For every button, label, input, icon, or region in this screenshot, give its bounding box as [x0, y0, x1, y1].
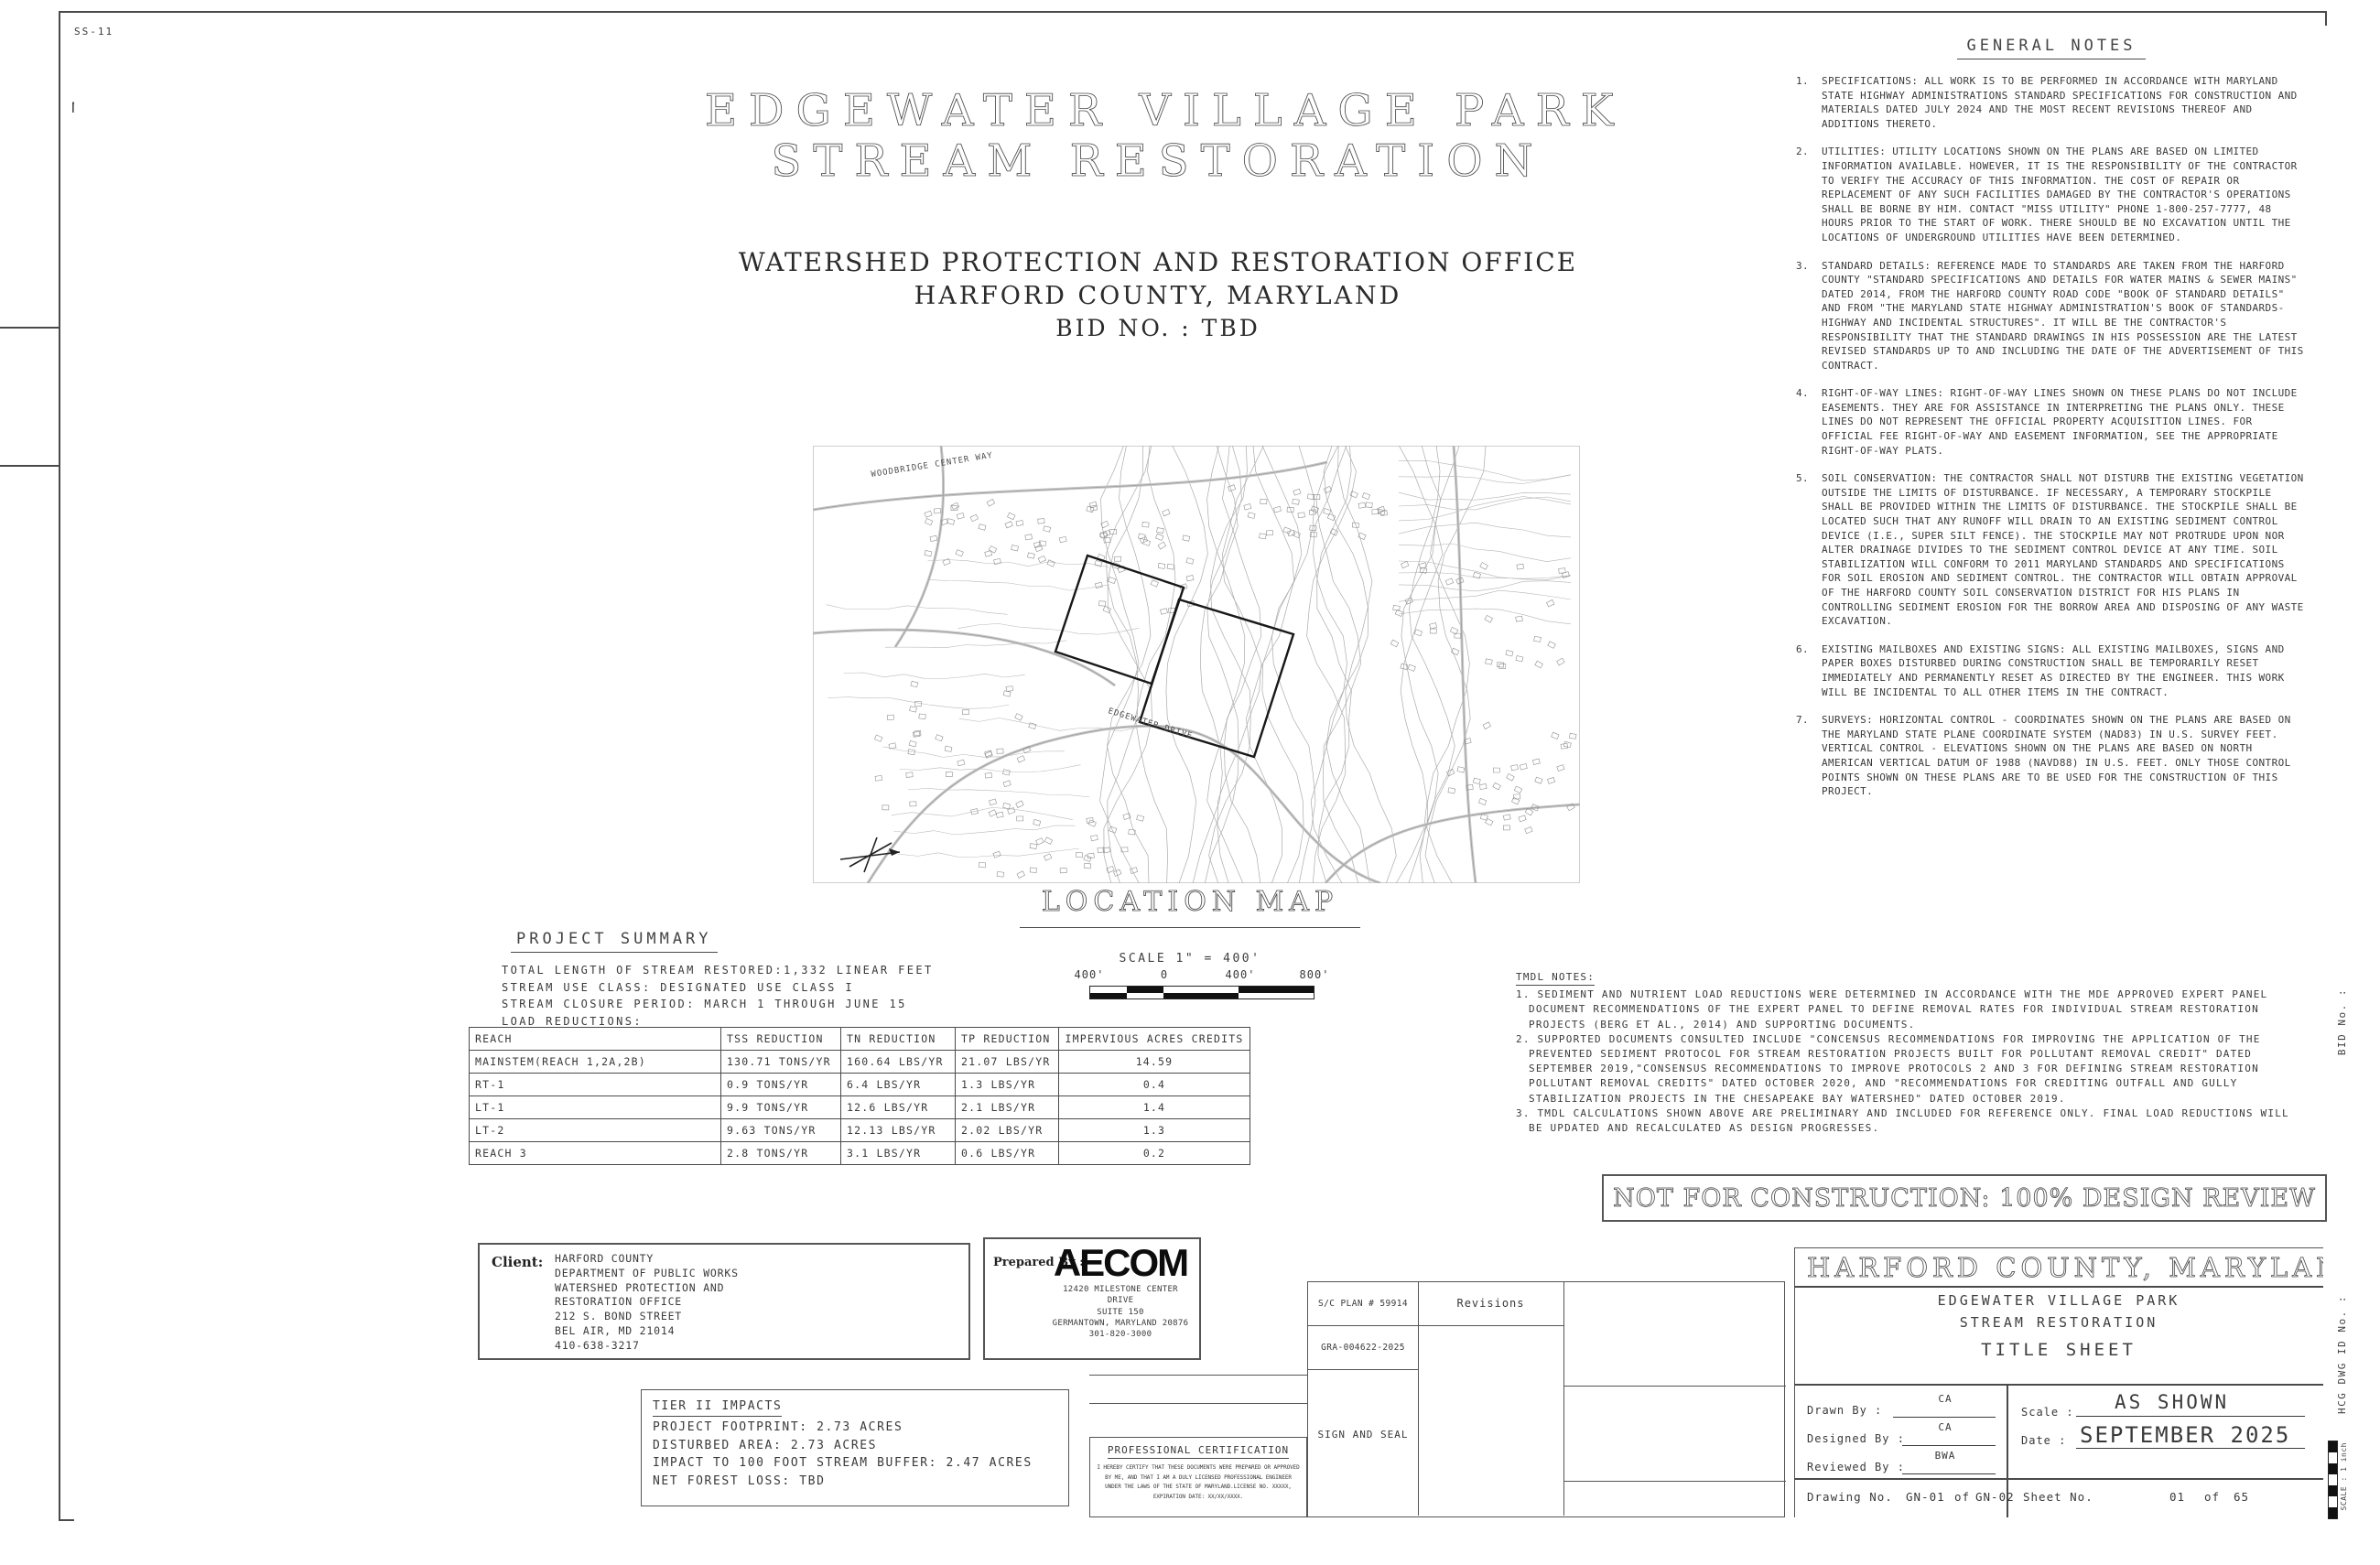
title-block-project-row: EDGEWATER VILLAGE PARK STREAM RESTORATIO… [1794, 1290, 2323, 1386]
sheet-no-label: Sheet No. [2023, 1490, 2093, 1504]
note-number: 4. [1796, 386, 1822, 458]
note-number: 6. [1796, 642, 1822, 699]
client-box: Client: HARFORD COUNTYDEPARTMENT OF PUBL… [478, 1243, 970, 1360]
scale-label: Scale : [2021, 1406, 2074, 1419]
table-row: LT-1 9.9 TONS/YR 12.6 LBS/YR 2.1 LBS/YR … [470, 1096, 1250, 1119]
tmdl-note: 2. SUPPORTED DOCUMENTS CONSULTED INCLUDE… [1516, 1032, 2309, 1106]
project-summary: PROJECT SUMMARY TOTAL LENGTH OF STREAM R… [502, 930, 1014, 1030]
sc-plan-number: S/C PLAN # 59914 [1308, 1299, 1418, 1309]
signature-line [1902, 1473, 1996, 1474]
project-name-line1: EDGEWATER VILLAGE PARK [1794, 1290, 2323, 1311]
reviewed-by-label: Reviewed By : [1807, 1461, 1905, 1473]
drawn-by-value: CA [1904, 1393, 1986, 1405]
tier2-line: DISTURBED AREA: 2.73 ACRES [653, 1437, 1068, 1455]
index-rows: 1 TITLE SHEET GN-01 2 GENERAL CONSTRUCTI… [71, 129, 465, 1415]
subtitle-office: WATERSHED PROTECTION AND RESTORATION OFF… [705, 247, 1611, 277]
location-map-image: WOODBRIDGE CENTER WAYEDGEWATER DRIVE [813, 446, 1580, 883]
revisions-label: Revisions [1418, 1297, 1563, 1310]
drawn-by-label: Drawn By : [1807, 1404, 1882, 1417]
aecom-logo: AECOM [1047, 1243, 1194, 1283]
scale-value: AS SHOWN [2115, 1391, 2229, 1413]
note-text: SOIL CONSERVATION: THE CONTRACTOR SHALL … [1822, 471, 2307, 629]
index-of-sheets: INDEX OF SHEETS NO. DESCRIPTION SHEETNAM… [71, 26, 465, 1415]
title-block-region-row: HARFORD COUNTY, MARYLAND [1794, 1247, 2323, 1288]
general-notes: GENERAL NOTES 1. SPECIFICATIONS: ALL WOR… [1796, 37, 2307, 813]
professional-certification-box: PROFESSIONAL CERTIFICATION I HEREBY CERT… [1089, 1437, 1307, 1517]
divider-line [1089, 1375, 1307, 1376]
reviewed-by-value: BWA [1904, 1450, 1986, 1462]
drawing-no2-value: GN-02 [1975, 1490, 2015, 1504]
table-row: LT-2 9.63 TONS/YR 12.13 LBS/YR 2.02 LBS/… [470, 1119, 1250, 1142]
load-reductions-table: REACH TSS REDUCTION TN REDUCTION TP REDU… [469, 1027, 1250, 1165]
drawing-sheet: INDEX OF SHEETS NO. DESCRIPTION SHEETNAM… [0, 0, 2380, 1539]
tier2-impacts-box: TIER II IMPACTS PROJECT FOOTPRINT: 2.73 … [641, 1389, 1069, 1506]
note-text: RIGHT-OF-WAY LINES: RIGHT-OF-WAY LINES S… [1822, 386, 2307, 458]
date-label: Date : [2021, 1434, 2066, 1447]
tmdl-note: 1. SEDIMENT AND NUTRIENT LOAD REDUCTIONS… [1516, 988, 2309, 1032]
subtitle-county: HARFORD COUNTY, MARYLAND [705, 282, 1611, 310]
note-text: EXISTING MAILBOXES AND EXISTING SIGNS: A… [1822, 642, 2307, 699]
sheet-title: TITLE SHEET [1794, 1335, 2323, 1365]
map-scale-ticks: 400' 0 400' 800' [1062, 968, 1340, 981]
note-number: 5. [1796, 471, 1822, 629]
tier2-line: PROJECT FOOTPRINT: 2.73 ACRES [653, 1419, 1068, 1437]
region-title: HARFORD COUNTY, MARYLAND [1807, 1252, 2323, 1283]
sheet-no-value: 01 [2169, 1490, 2185, 1504]
table-row: RT-1 0.9 TONS/YR 6.4 LBS/YR 1.3 LBS/YR 0… [470, 1074, 1250, 1096]
revisions-block: S/C PLAN # 59914 GRA-004622-2025 SIGN AN… [1307, 1281, 1785, 1517]
project-title-line1: EDGEWATER VILLAGE PARK [705, 86, 1611, 136]
general-note: 2. UTILITIES: UTILITY LOCATIONS SHOWN ON… [1796, 145, 2307, 244]
note-number: 3. [1796, 259, 1822, 373]
general-notes-title: GENERAL NOTES [1957, 37, 2145, 59]
signature-line [1893, 1417, 1996, 1418]
hcg-dwg-id-edge-label: HCG DWG ID No. : [2336, 1295, 2348, 1414]
drawing-no-label: Drawing No. [1807, 1490, 1893, 1504]
tmdl-notes-title: TMDL NOTES: [1516, 970, 1595, 986]
tmdl-note: 3. TMDL CALCULATIONS SHOWN ABOVE ARE PRE… [1516, 1106, 2309, 1136]
note-number: 7. [1796, 713, 1822, 799]
divider-line [2007, 1384, 2008, 1478]
note-text: STANDARD DETAILS: REFERENCE MADE TO STAN… [1822, 259, 2307, 373]
left-registration-tick [0, 327, 59, 329]
table-row: REACH 3 2.8 TONS/YR 3.1 LBS/YR 0.6 LBS/Y… [470, 1142, 1250, 1165]
tmdl-notes: TMDL NOTES: 1. SEDIMENT AND NUTRIENT LOA… [1516, 970, 2309, 1136]
project-title-line2: STREAM RESTORATION [705, 136, 1611, 187]
divider-line [1089, 1403, 1307, 1404]
title-block: HARFORD COUNTY, MARYLAND EDGEWATER VILLA… [1794, 1247, 2323, 1517]
divider-line [1563, 1386, 1786, 1387]
divider-line [1418, 1282, 1419, 1516]
note-text: SURVEYS: HORIZONTAL CONTROL - COORDINATE… [1822, 713, 2307, 799]
note-text: SPECIFICATIONS: ALL WORK IS TO BE PERFOR… [1822, 74, 2307, 131]
project-title: EDGEWATER VILLAGE PARK STREAM RESTORATIO… [705, 86, 1611, 187]
edge-scale-label: SCALE : 1 inch [2340, 1442, 2348, 1510]
general-note: 4. RIGHT-OF-WAY LINES: RIGHT-OF-WAY LINE… [1796, 386, 2307, 458]
general-note: 5. SOIL CONSERVATION: THE CONTRACTOR SHA… [1796, 471, 2307, 629]
client-address: HARFORD COUNTYDEPARTMENT OF PUBLIC WORKS… [555, 1252, 739, 1354]
table-row: MAINSTEM(REACH 1,2A,2B) 130.71 TONS/YR 1… [470, 1051, 1250, 1074]
general-note: 6. EXISTING MAILBOXES AND EXISTING SIGNS… [1796, 642, 2307, 699]
aecom-block: AECOM 12420 MILESTONE CENTER DRIVESUITE … [1047, 1243, 1194, 1340]
map-scale-text: SCALE 1" = 400' [1007, 952, 1373, 966]
general-note: 3. STANDARD DETAILS: REFERENCE MADE TO S… [1796, 259, 2307, 373]
project-name-line2: STREAM RESTORATION [1794, 1311, 2323, 1333]
aecom-address: 12420 MILESTONE CENTER DRIVESUITE 150GER… [1047, 1284, 1194, 1340]
note-number: 1. [1796, 74, 1822, 131]
drawing-no-value: GN-01 [1906, 1490, 1945, 1504]
divider-line [1308, 1325, 1563, 1326]
project-subtitle: WATERSHED PROTECTION AND RESTORATION OFF… [705, 247, 1611, 341]
general-note: 7. SURVEYS: HORIZONTAL CONTROL - COORDIN… [1796, 713, 2307, 799]
tier2-line: NET FOREST LOSS: TBD [653, 1473, 1068, 1491]
designed-by-value: CA [1904, 1421, 1986, 1433]
drawing-of: of [1954, 1490, 1970, 1504]
signature-line [1902, 1445, 1996, 1446]
title-block-credits-row: Drawn By : CA Designed By : CA Reviewed … [1794, 1384, 2323, 1480]
topographic-map: WOODBRIDGE CENTER WAYEDGEWATER DRIVE [813, 446, 1580, 883]
bid-no-edge-label: BID No. : [2336, 988, 2348, 1055]
not-for-construction-banner: NOT FOR CONSTRUCTION: 100% DESIGN REVIEW [1602, 1174, 2327, 1222]
designed-by-label: Designed By : [1807, 1432, 1905, 1445]
gra-number: GRA-004622-2025 [1308, 1343, 1418, 1353]
general-note: 1. SPECIFICATIONS: ALL WORK IS TO BE PER… [1796, 74, 2307, 131]
certification-title: PROFESSIONAL CERTIFICATION [1108, 1444, 1289, 1459]
project-summary-title: PROJECT SUMMARY [511, 930, 718, 953]
tier2-line: IMPACT TO 100 FOOT STREAM BUFFER: 2.47 A… [653, 1454, 1068, 1473]
index-row: 65 SEWER DETAILS SS-11 [71, 1395, 465, 1414]
client-label: Client: [492, 1254, 543, 1270]
subtitle-bid: BID NO. : TBD [705, 315, 1611, 341]
divider-line [1308, 1369, 1418, 1370]
title-block-number-row: Drawing No. GN-01 of GN-02 Sheet No. 01 … [1794, 1478, 2323, 1517]
left-registration-tick [0, 465, 59, 467]
divider-line [1563, 1481, 1786, 1482]
sign-and-seal-cell: SIGN AND SEAL [1308, 1429, 1418, 1441]
sheet-of: of [2204, 1490, 2220, 1504]
sheet-total-value: 65 [2234, 1490, 2249, 1504]
project-summary-lines: TOTAL LENGTH OF STREAM RESTORED:1,332 LI… [502, 962, 1014, 1030]
prepared-by-box: Prepared By : AECOM 12420 MILESTONE CENT… [983, 1237, 1201, 1360]
location-map-label: LOCATION MAP [934, 886, 1446, 928]
tier2-title: TIER II IMPACTS [653, 1398, 782, 1417]
underline [2076, 1448, 2305, 1449]
note-text: UTILITIES: UTILITY LOCATIONS SHOWN ON TH… [1822, 145, 2307, 244]
underline [2076, 1416, 2305, 1417]
map-scale-bar [1089, 986, 1314, 999]
certification-text: I HEREBY CERTIFY THAT THESE DOCUMENTS WE… [1096, 1463, 1301, 1502]
edge-scale-bar [2328, 1441, 2338, 1519]
note-number: 2. [1796, 145, 1822, 244]
date-value: SEPTEMBER 2025 [2080, 1422, 2290, 1448]
table-header-row: REACH TSS REDUCTION TN REDUCTION TP REDU… [470, 1028, 1250, 1051]
